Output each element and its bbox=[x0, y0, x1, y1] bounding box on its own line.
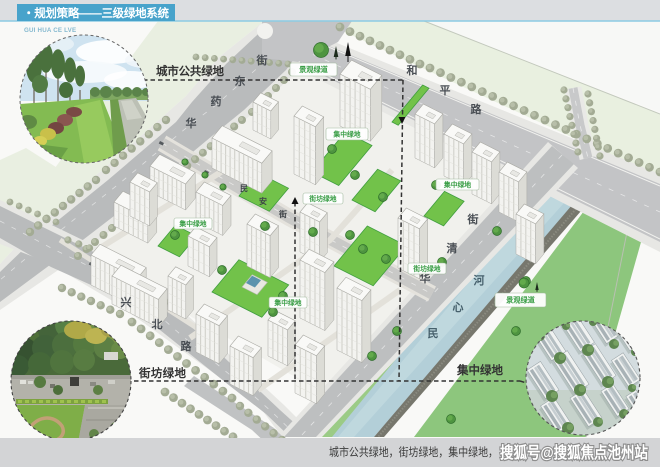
svg-text:民: 民 bbox=[428, 327, 439, 340]
svg-text:街坊绿地: 街坊绿地 bbox=[308, 194, 336, 203]
svg-text:街: 街 bbox=[256, 53, 268, 67]
svg-text:集中绿地: 集中绿地 bbox=[456, 363, 504, 377]
svg-text:城市公共绿地: 城市公共绿地 bbox=[156, 64, 225, 78]
svg-text:平: 平 bbox=[440, 84, 451, 97]
svg-text:GUI HUA CE LVE: GUI HUA CE LVE bbox=[24, 27, 76, 34]
svg-text:河: 河 bbox=[474, 273, 485, 287]
svg-text:集中绿地: 集中绿地 bbox=[178, 219, 206, 228]
svg-text:集中绿地: 集中绿地 bbox=[332, 129, 360, 138]
svg-text:安: 安 bbox=[259, 196, 267, 206]
svg-text:集中绿地: 集中绿地 bbox=[443, 180, 471, 189]
svg-text:景观绿道: 景观绿道 bbox=[299, 65, 329, 74]
svg-text:心: 心 bbox=[453, 301, 464, 314]
svg-text:搜狐号@搜狐焦点池州站: 搜狐号@搜狐焦点池州站 bbox=[500, 443, 648, 462]
svg-text:街: 街 bbox=[278, 209, 287, 219]
svg-text:路: 路 bbox=[181, 339, 193, 353]
svg-text:路: 路 bbox=[471, 102, 483, 116]
svg-text:华: 华 bbox=[186, 116, 197, 130]
svg-text:街: 街 bbox=[467, 212, 479, 226]
svg-text:兴: 兴 bbox=[121, 295, 132, 309]
svg-text:城市公共绿地，街坊绿地，集中绿地，: 城市公共绿地，街坊绿地，集中绿地， bbox=[329, 445, 498, 459]
svg-text:街坊绿地: 街坊绿地 bbox=[138, 366, 187, 380]
svg-text:・规划策略——三级绿地系统: ・规划策略——三级绿地系统 bbox=[23, 6, 170, 20]
svg-text:北: 北 bbox=[152, 317, 163, 331]
svg-text:街坊绿地: 街坊绿地 bbox=[412, 264, 440, 273]
svg-text:集中绿地: 集中绿地 bbox=[273, 298, 301, 307]
svg-text:景观绿道: 景观绿道 bbox=[506, 296, 536, 305]
svg-text:东: 东 bbox=[235, 74, 246, 88]
svg-text:民: 民 bbox=[240, 184, 248, 193]
svg-text:和: 和 bbox=[407, 63, 418, 77]
svg-text:清: 清 bbox=[447, 241, 458, 255]
svg-text:药: 药 bbox=[211, 94, 222, 108]
